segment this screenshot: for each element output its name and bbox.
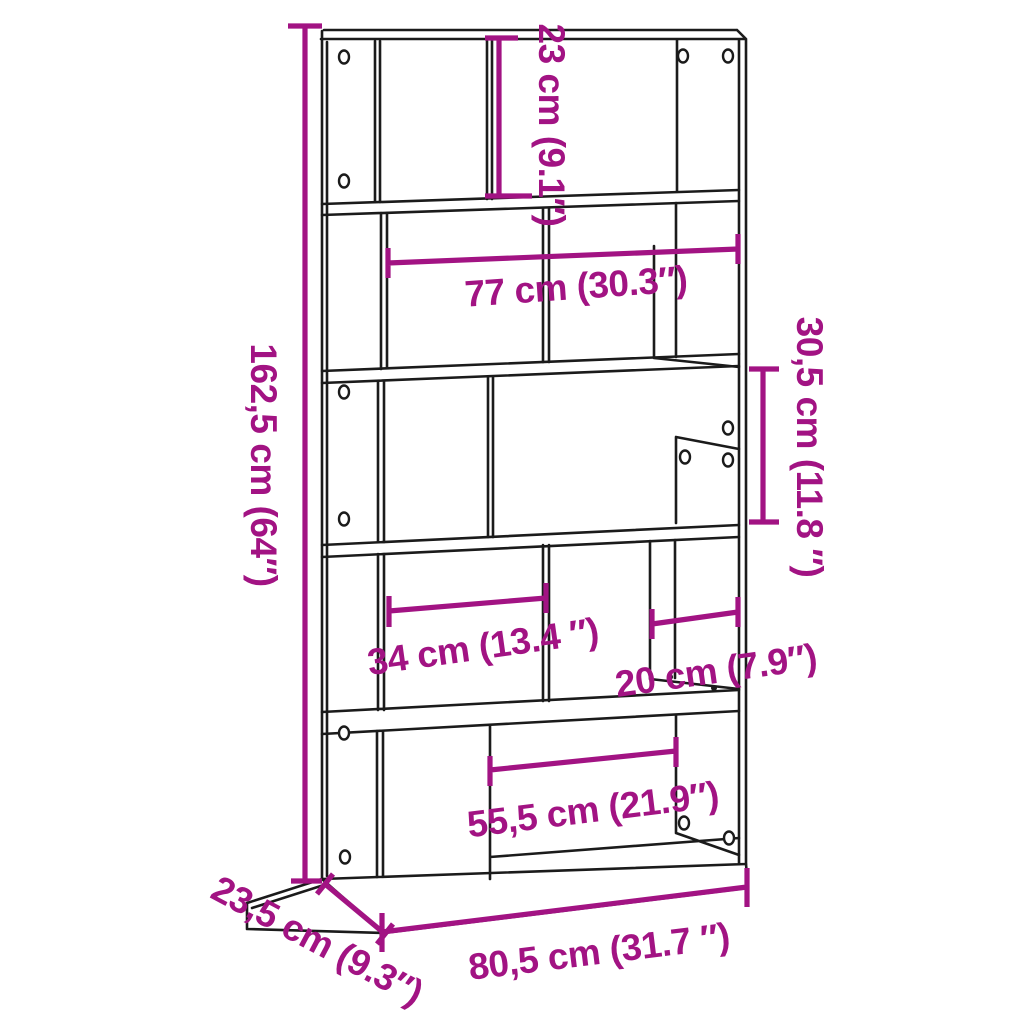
screw-hole-icon <box>339 51 349 64</box>
screw-hole-icon <box>339 175 349 188</box>
screw-hole-icon <box>340 851 350 864</box>
dim-label-side-compartment: 30,5 cm (11.8 ″) <box>788 317 830 578</box>
dim-line-right-compartment-width <box>652 597 738 639</box>
tier1-panels <box>375 40 677 202</box>
screw-hole-icon <box>339 513 349 526</box>
dim-line-side-compartment <box>749 369 779 522</box>
bookcase-line-art <box>0 0 1024 1024</box>
screw-hole-icon <box>724 832 734 845</box>
dim-line-bottom-compartment-width <box>490 737 676 786</box>
screw-hole-icon <box>723 50 733 63</box>
screw-hole-icon <box>678 50 688 63</box>
screw-hole-icon <box>723 454 733 467</box>
dim-label-total-height: 162,5 cm (64″) <box>242 343 284 586</box>
dim-line-total-height <box>288 26 322 881</box>
screw-hole-icon <box>680 451 690 464</box>
dim-label-top-compartment: 23 cm (9.1″) <box>530 24 572 227</box>
dimension-diagram: 162,5 cm (64″) 23 cm (9.1″) 77 cm (30.3″… <box>0 0 1024 1024</box>
screw-hole-icon <box>339 386 349 399</box>
screw-hole-icon <box>339 727 349 740</box>
screw-hole-icon <box>723 422 733 435</box>
